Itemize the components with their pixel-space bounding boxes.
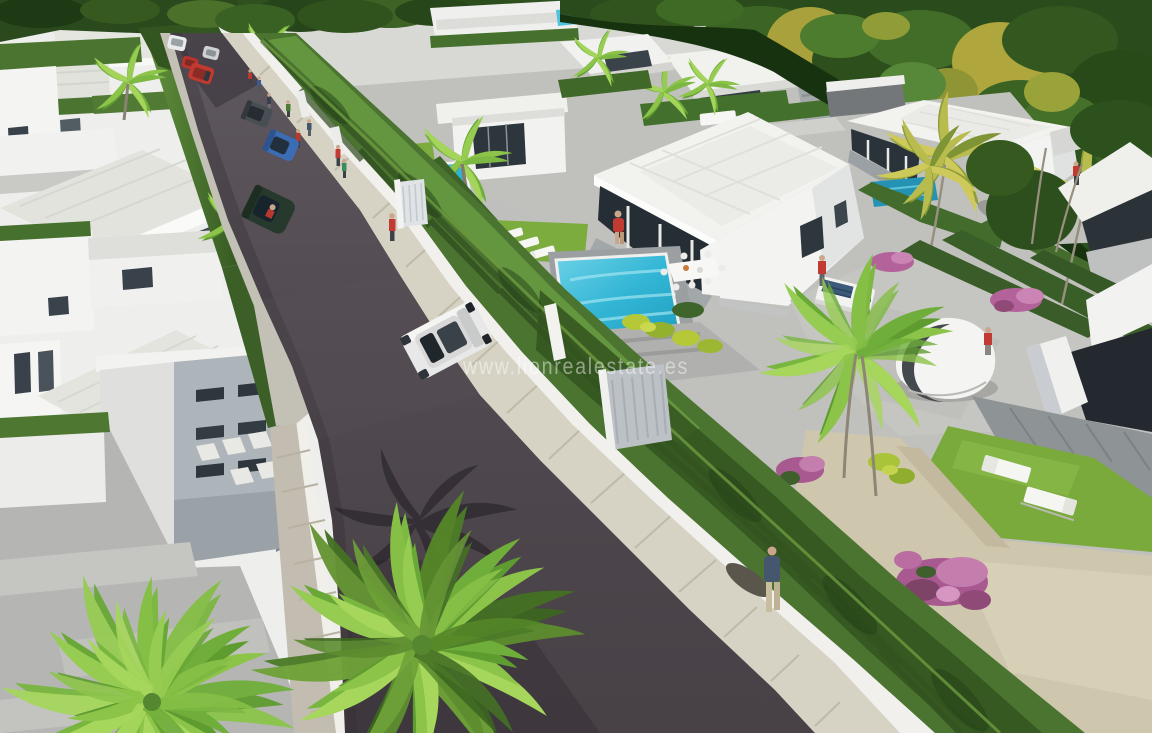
- svg-text:www.lionrealestate.es: www.lionrealestate.es: [462, 353, 689, 379]
